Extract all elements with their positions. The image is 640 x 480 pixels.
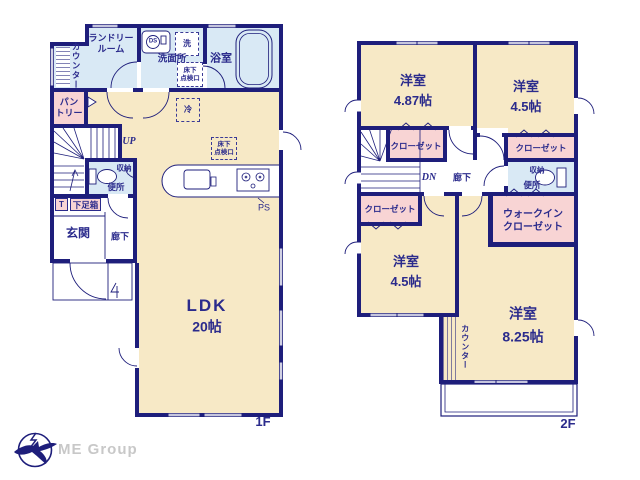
floor-hatch-box-washroom: 床下点検口 <box>177 62 203 87</box>
washroom-label: 洗面所 <box>158 53 187 64</box>
logo-text: ME Group <box>58 441 138 458</box>
closet1-label: クローゼット <box>390 141 441 151</box>
stairs-down-label: DN <box>422 172 436 184</box>
storage-label-1f: 収納 <box>117 164 132 173</box>
pantry-label: パン トリー <box>55 97 82 120</box>
bedroom4-label: 洋室 <box>509 306 537 323</box>
entrance-label: 玄関 <box>66 226 90 240</box>
stairs-up-label: UP <box>122 136 135 148</box>
bedroom4-size-label: 8.25帖 <box>502 329 543 346</box>
linework-layer <box>0 0 640 480</box>
floor2-label: 2F <box>560 416 575 432</box>
laundry-room-label: ランドリールーム <box>86 33 136 55</box>
corridor-label-1f: 廊下 <box>111 232 129 243</box>
fridge-space-box: 冷 <box>176 98 200 122</box>
closet3-label: クローゼット <box>364 204 415 214</box>
porch-1f <box>53 263 132 300</box>
shoebox: 下足箱 <box>70 198 101 211</box>
counter-label-1f: カウンター <box>71 42 81 90</box>
bedroom2-label: 洋室 <box>513 79 539 95</box>
counter-label-2f: カウンター <box>460 325 470 370</box>
kitchen-counter-icon <box>162 165 279 203</box>
me-group-logo <box>14 433 57 467</box>
walkin-closet-label: ウォークイン クローゼット <box>503 208 563 234</box>
toilet-label-1f: 便所 <box>107 182 124 192</box>
storage-label-2f: 収納 <box>530 166 545 175</box>
bedroom2-size-label: 4.5帖 <box>510 99 541 115</box>
t-box: T <box>55 198 68 211</box>
corridor-label-2f: 廊下 <box>453 173 471 184</box>
stairs-2f <box>361 128 420 192</box>
bedroom1-size-label: 4.87帖 <box>394 93 432 109</box>
balcony-2f <box>441 384 577 416</box>
ps-label: PS <box>258 203 270 214</box>
bedroom3-label: 洋室 <box>393 254 419 270</box>
bedroom1-label: 洋室 <box>400 73 426 89</box>
ldk-size-label: 20帖 <box>192 319 222 336</box>
bathroom-label: 浴室 <box>210 52 232 65</box>
ds-label: DS <box>149 38 157 45</box>
floor-plan-page: 洗 床下点検口 冷 床下点検口 T 下足箱 ランドリールーム カウンター DS … <box>0 0 640 480</box>
bathtub-icon <box>236 30 272 88</box>
bedroom3-size-label: 4.5帖 <box>390 274 421 290</box>
floor1-label: 1F <box>255 414 270 430</box>
floor-hatch-box-ldk: 床下点検口 <box>211 137 237 160</box>
windows-1f <box>50 24 283 417</box>
ldk-label: LDK <box>187 296 228 316</box>
closet2-label: クローゼット <box>515 143 566 153</box>
toilet-label-2f: 便所 <box>523 180 540 190</box>
